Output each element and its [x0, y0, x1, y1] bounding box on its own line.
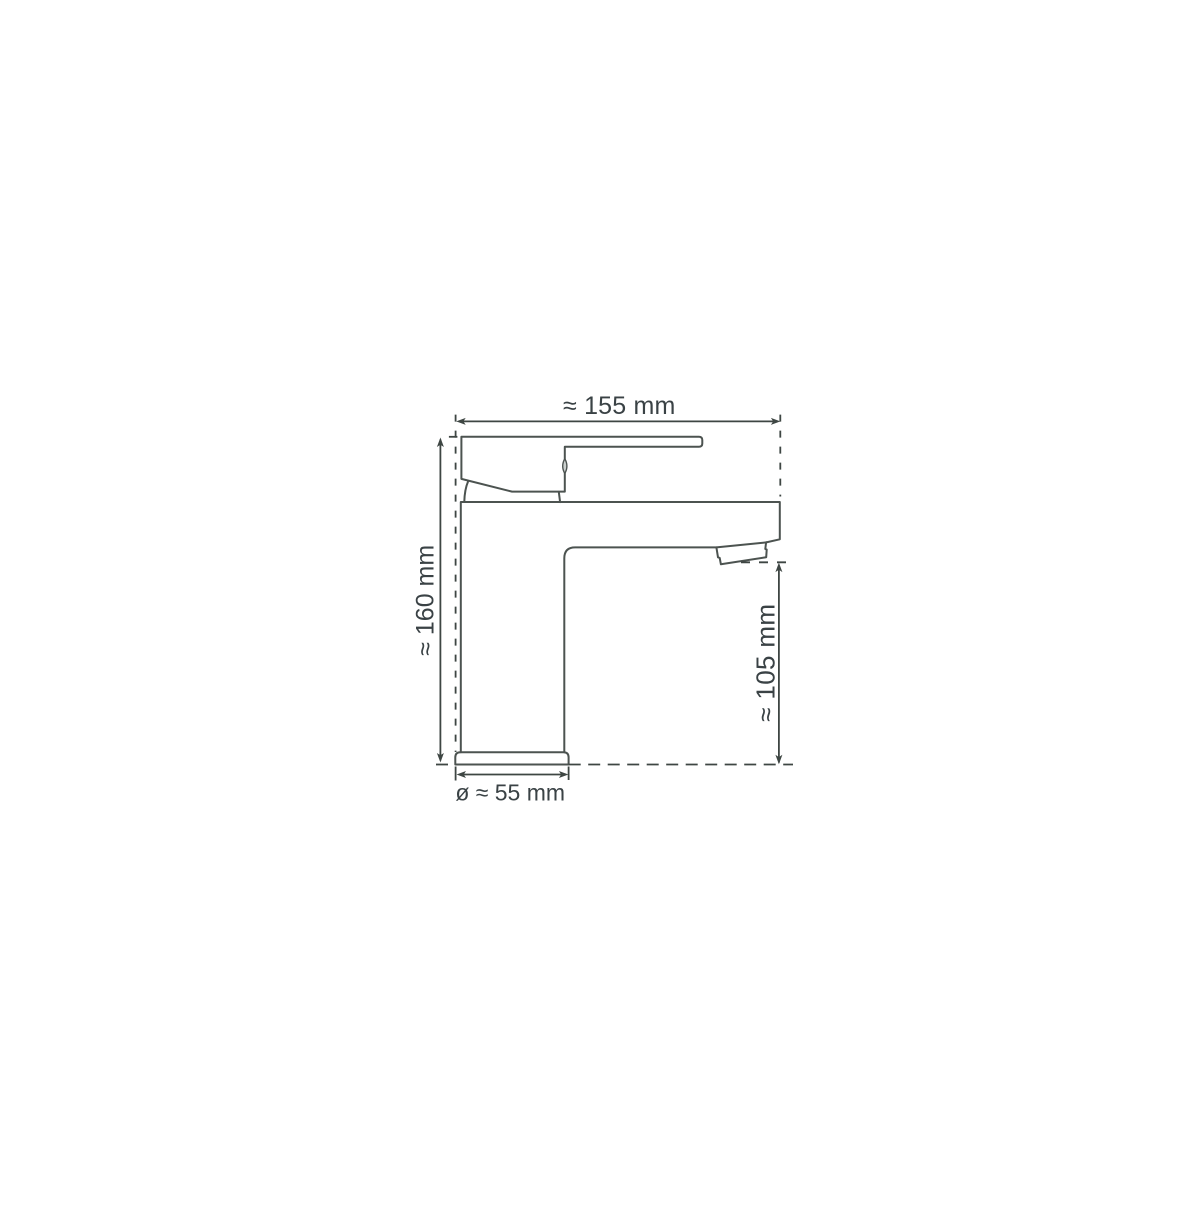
- svg-text:≈ 155 mm: ≈ 155 mm: [563, 392, 676, 420]
- svg-text:≈ 105 mm: ≈ 105 mm: [751, 604, 781, 722]
- svg-text:≈ 160 mm: ≈ 160 mm: [412, 545, 440, 656]
- svg-text:ø ≈ 55 mm: ø ≈ 55 mm: [455, 780, 565, 806]
